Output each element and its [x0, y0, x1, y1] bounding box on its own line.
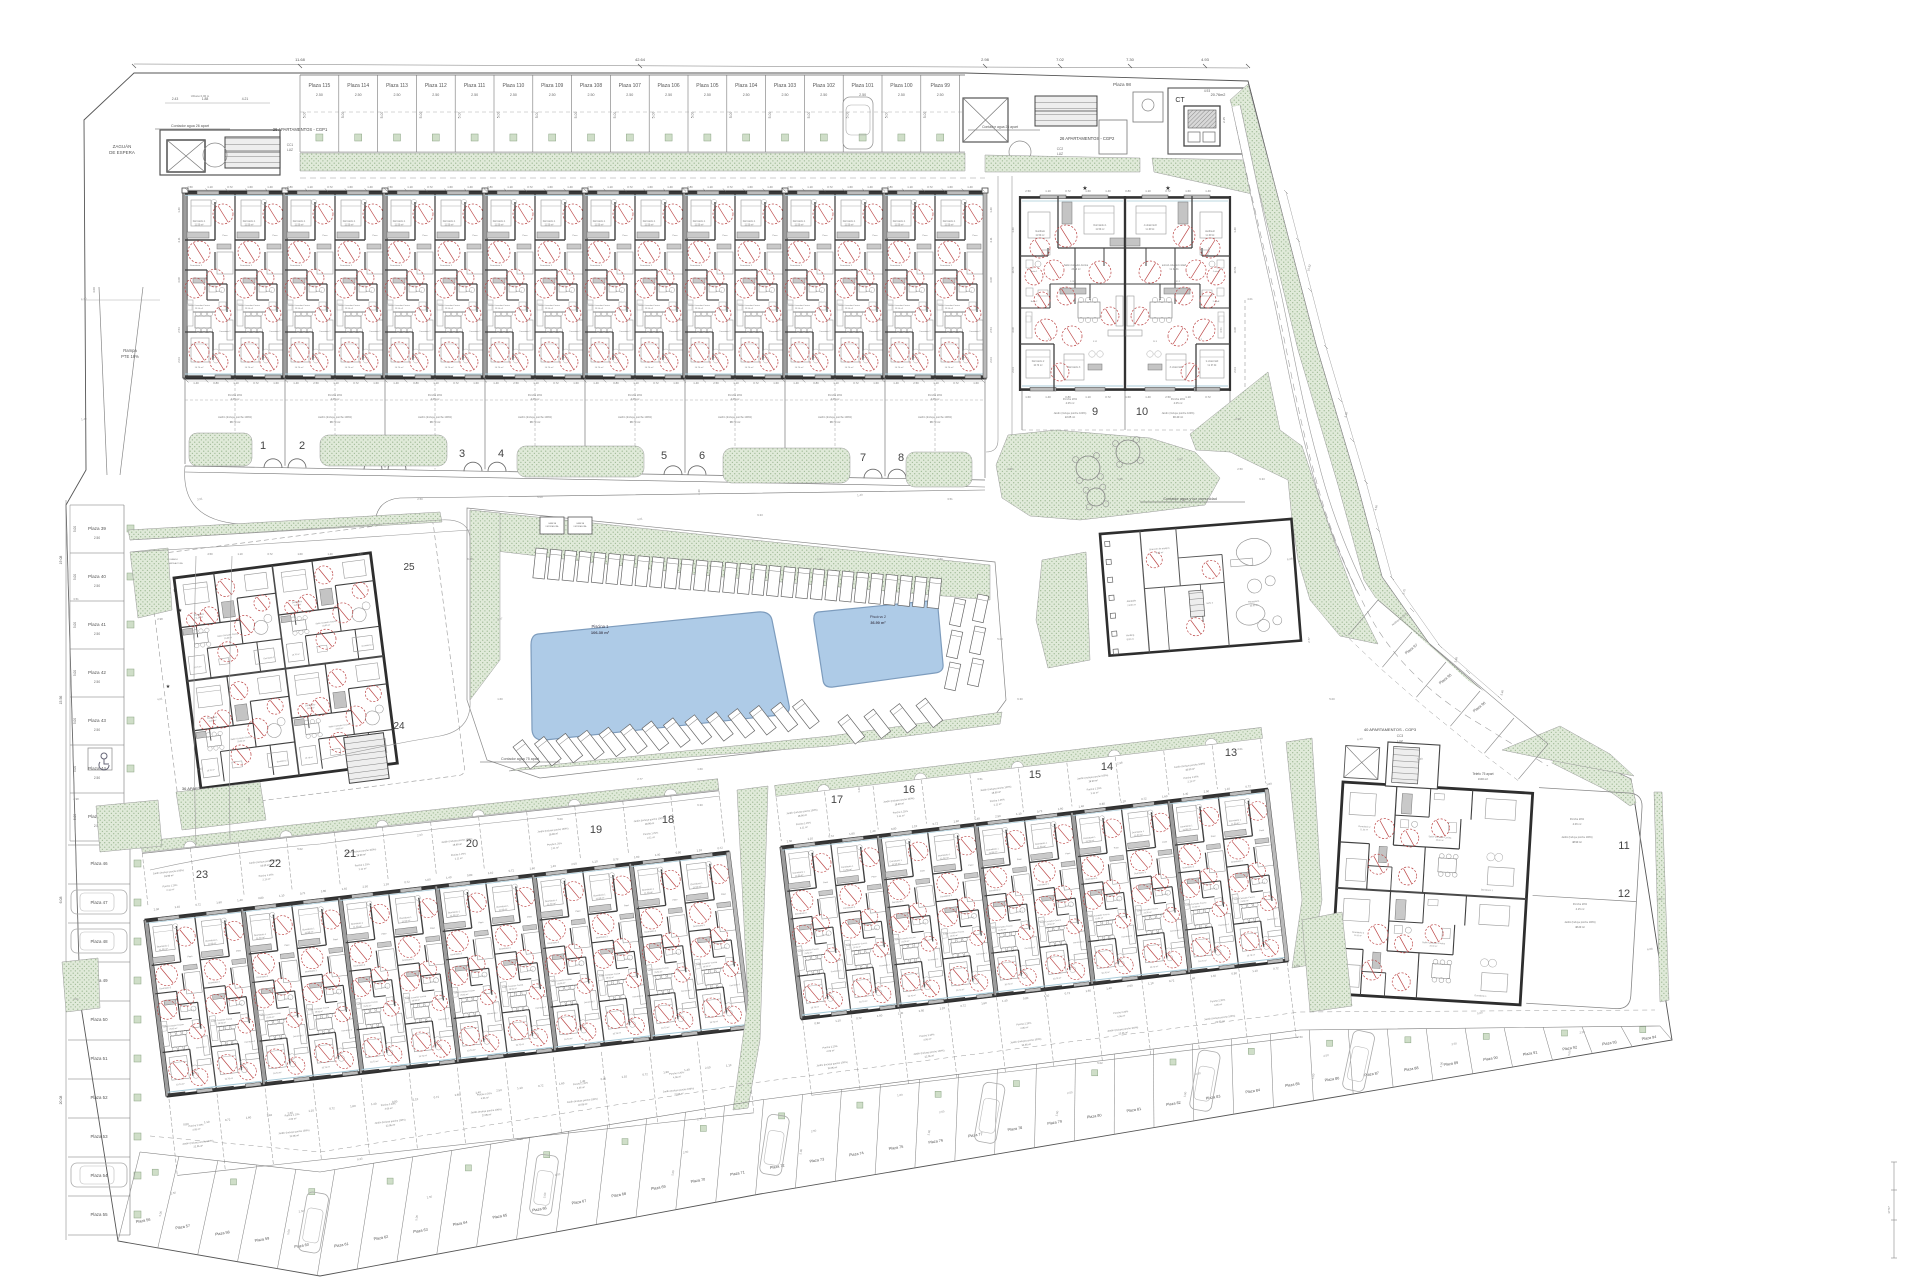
svg-text:0.72: 0.72	[195, 902, 201, 907]
svg-text:1.40: 1.40	[898, 1011, 904, 1016]
svg-text:1.40: 1.40	[493, 381, 499, 385]
svg-text:1.60: 1.60	[1085, 988, 1091, 993]
svg-text:1.60: 1.60	[747, 185, 753, 189]
svg-text:13: 13	[1225, 747, 1237, 759]
svg-text:Jardín (Incluye porche 100%): Jardín (Incluye porche 100%)	[1162, 412, 1195, 415]
svg-text:6.08: 6.08	[1647, 947, 1653, 952]
svg-text:0.72: 0.72	[427, 185, 433, 189]
svg-text:1.40: 1.40	[1002, 998, 1008, 1003]
svg-text:0.80: 0.80	[1231, 971, 1237, 976]
svg-text:2.50: 2.50	[898, 93, 905, 97]
svg-text:Plaza 42: Plaza 42	[88, 670, 106, 675]
svg-text:Porche 20%: Porche 20%	[828, 393, 843, 397]
svg-text:2.50: 2.50	[743, 93, 750, 97]
svg-text:PTE 16%: PTE 16%	[121, 354, 139, 359]
svg-text:2.50: 2.50	[1237, 467, 1243, 471]
svg-text:1.40: 1.40	[393, 381, 399, 385]
svg-text:2.50: 2.50	[549, 93, 556, 97]
svg-text:1.10: 1.10	[592, 859, 598, 864]
svg-text:1.60: 1.60	[634, 855, 640, 860]
svg-text:1.10: 1.10	[533, 381, 539, 385]
svg-text:1.60: 1.60	[873, 381, 879, 385]
svg-text:Plaza 112: Plaza 112	[425, 83, 447, 89]
svg-text:1.40: 1.40	[1205, 189, 1211, 193]
svg-text:4.05 m²: 4.05 m²	[531, 397, 540, 401]
svg-text:1.40: 1.40	[793, 381, 799, 385]
svg-text:1.40: 1.40	[1011, 227, 1015, 233]
svg-text:0.72: 0.72	[642, 1072, 648, 1077]
svg-text:7: 7	[860, 452, 866, 464]
svg-text:1.10: 1.10	[517, 1086, 523, 1091]
svg-text:19.08: 19.08	[59, 556, 63, 565]
svg-text:Porche 20%: Porche 20%	[328, 393, 343, 397]
svg-text:15.56: 15.56	[59, 696, 63, 705]
svg-text:5: 5	[661, 450, 667, 462]
svg-text:1.60: 1.60	[1185, 189, 1191, 193]
svg-text:Plaza 98: Plaza 98	[1113, 82, 1131, 87]
svg-text:1.10: 1.10	[607, 185, 613, 189]
svg-text:1.40: 1.40	[1417, 757, 1423, 762]
svg-text:1.40: 1.40	[81, 417, 87, 422]
svg-text:1.10: 1.10	[207, 185, 213, 189]
svg-text:25: 25	[403, 562, 415, 573]
svg-text:0.72: 0.72	[856, 1016, 862, 1021]
svg-text:5.00: 5.00	[557, 817, 563, 821]
svg-text:0.80: 0.80	[813, 381, 819, 385]
svg-text:6.30: 6.30	[1357, 737, 1363, 742]
svg-text:0.80: 0.80	[1125, 189, 1131, 193]
svg-text:9.00 m²: 9.00 m²	[1156, 551, 1164, 555]
svg-text:20: 20	[466, 838, 478, 850]
svg-text:Plaza 102: Plaza 102	[813, 83, 835, 89]
svg-text:2.50: 2.50	[918, 1008, 924, 1013]
svg-text:0.72: 0.72	[727, 185, 733, 189]
svg-text:1.60: 1.60	[216, 900, 222, 905]
svg-text:2.50: 2.50	[510, 93, 517, 97]
svg-text:1.40: 1.40	[550, 864, 556, 869]
svg-text:2.50: 2.50	[665, 93, 672, 97]
svg-text:0.80: 0.80	[467, 873, 473, 878]
svg-text:Jardín (Incluye porche 100%): Jardín (Incluye porche 100%)	[218, 415, 252, 419]
svg-text:0.72: 0.72	[1205, 395, 1211, 399]
svg-text:1.10: 1.10	[1148, 981, 1154, 986]
svg-text:0.72: 0.72	[225, 1117, 231, 1122]
svg-text:2.50: 2.50	[387, 185, 393, 189]
svg-text:3.08: 3.08	[1233, 327, 1237, 333]
svg-text:0.72: 0.72	[1065, 189, 1071, 193]
svg-text:5.00: 5.00	[537, 495, 543, 499]
svg-text:DEPURADORA: DEPURADORA	[546, 525, 559, 528]
svg-text:1.60: 1.60	[877, 1013, 883, 1018]
svg-text:8.00 m²: 8.00 m²	[1127, 638, 1135, 642]
svg-text:9.33: 9.33	[1259, 477, 1265, 481]
svg-text:106.30 m²: 106.30 m²	[591, 630, 610, 635]
svg-text:5.00: 5.00	[73, 526, 77, 532]
svg-text:2.50: 2.50	[207, 552, 213, 556]
svg-text:0.72: 0.72	[1273, 966, 1279, 971]
svg-text:Plaza 43: Plaza 43	[88, 718, 106, 723]
svg-text:0.80: 0.80	[600, 1077, 606, 1082]
svg-text:5.00: 5.00	[458, 112, 462, 119]
svg-text:Porche 20%: Porche 20%	[1573, 902, 1588, 906]
svg-text:1.40: 1.40	[1145, 395, 1151, 399]
svg-text:0.72: 0.72	[828, 834, 834, 839]
svg-text:3: 3	[459, 448, 465, 460]
svg-text:0.72: 0.72	[527, 185, 533, 189]
svg-text:14: 14	[1101, 761, 1113, 773]
svg-text:11.75: 11.75	[1127, 509, 1134, 513]
svg-text:5.00: 5.00	[574, 112, 578, 119]
svg-text:CASETA: CASETA	[548, 522, 557, 525]
svg-text:1.10: 1.10	[833, 381, 839, 385]
svg-text:11.68: 11.68	[295, 57, 305, 62]
svg-text:DE ESPERA: DE ESPERA	[109, 150, 135, 155]
svg-text:0.72: 0.72	[627, 185, 633, 189]
svg-text:2: 2	[299, 440, 305, 452]
svg-text:2.50: 2.50	[786, 839, 792, 844]
svg-text:2.98: 2.98	[1007, 467, 1013, 471]
svg-text:0.80: 0.80	[213, 381, 219, 385]
svg-text:0.80: 0.80	[258, 895, 264, 900]
svg-text:19: 19	[590, 824, 602, 836]
svg-text:1.40: 1.40	[893, 381, 899, 385]
svg-text:1.40: 1.40	[1233, 227, 1237, 233]
svg-text:1.10: 1.10	[1085, 395, 1091, 399]
svg-text:5.00: 5.00	[807, 112, 811, 119]
svg-text:2.50: 2.50	[94, 776, 100, 780]
svg-text:2.15: 2.15	[1222, 117, 1226, 123]
svg-text:1.40: 1.40	[1210, 973, 1216, 978]
svg-text:1.10: 1.10	[907, 185, 913, 189]
svg-text:Contador agua 26 apart: Contador agua 26 apart	[171, 124, 209, 128]
svg-text:38.70 m²: 38.70 m²	[430, 420, 441, 424]
svg-text:Plaza 50: Plaza 50	[90, 1017, 108, 1022]
svg-text:2.50: 2.50	[820, 93, 827, 97]
svg-text:Rampa: Rampa	[123, 348, 137, 353]
svg-text:6.08: 6.08	[467, 557, 473, 561]
svg-text:38.70 m²: 38.70 m²	[630, 420, 641, 424]
svg-text:DEPURADORA: DEPURADORA	[574, 525, 587, 528]
svg-text:1.60: 1.60	[1162, 794, 1168, 799]
svg-text:40 APARTAMENTOS - CGP3: 40 APARTAMENTOS - CGP3	[1364, 727, 1417, 732]
svg-text:1.10: 1.10	[633, 381, 639, 385]
svg-text:1.40: 1.40	[1183, 791, 1189, 796]
svg-text:5.00: 5.00	[380, 112, 384, 119]
svg-text:2.50: 2.50	[94, 536, 100, 540]
svg-text:1.10: 1.10	[279, 893, 285, 898]
svg-text:1.10: 1.10	[807, 185, 813, 189]
svg-text:0.80: 0.80	[413, 381, 419, 385]
svg-text:1.10: 1.10	[507, 185, 513, 189]
svg-text:4.21: 4.21	[242, 97, 249, 101]
svg-text:Porche 20%: Porche 20%	[1063, 397, 1078, 401]
svg-text:2.50: 2.50	[782, 93, 789, 97]
svg-text:1.60: 1.60	[973, 381, 979, 385]
svg-text:4.05 m²: 4.05 m²	[331, 397, 340, 401]
svg-text:Plaza 103: Plaza 103	[774, 83, 796, 89]
svg-text:2.50: 2.50	[713, 381, 719, 385]
svg-text:0.72: 0.72	[960, 1003, 966, 1008]
svg-text:1.60: 1.60	[847, 185, 853, 189]
svg-text:3.51: 3.51	[73, 597, 79, 601]
svg-text:2.98: 2.98	[1235, 417, 1241, 421]
svg-text:4.15 m²: 4.15 m²	[1576, 907, 1585, 911]
svg-text:0.72: 0.72	[827, 185, 833, 189]
svg-text:5.00: 5.00	[729, 112, 733, 119]
svg-text:0.80: 0.80	[887, 185, 893, 189]
svg-text:1.40: 1.40	[266, 1113, 272, 1118]
svg-text:CC2: CC2	[1057, 147, 1064, 151]
svg-text:Plaza 111: Plaza 111	[464, 83, 486, 89]
svg-text:1.60: 1.60	[297, 552, 303, 556]
svg-text:Piscina 1: Piscina 1	[592, 624, 610, 629]
svg-text:5.00: 5.00	[690, 112, 694, 119]
svg-text:1.40: 1.40	[857, 787, 861, 793]
svg-text:0.72: 0.72	[227, 185, 233, 189]
svg-text:Plaza 39: Plaza 39	[88, 526, 106, 531]
svg-text:1: 1	[260, 440, 266, 452]
svg-text:Jardín (Incluye porche 100%): Jardín (Incluye porche 100%)	[1564, 921, 1595, 924]
svg-text:1.40: 1.40	[1078, 804, 1084, 809]
svg-text:5.00: 5.00	[302, 112, 306, 119]
svg-text:1.40: 1.40	[1045, 395, 1051, 399]
svg-text:CASETA: CASETA	[576, 522, 585, 525]
svg-text:1.40: 1.40	[237, 898, 243, 903]
svg-text:Porche 20%: Porche 20%	[928, 393, 943, 397]
svg-text:0.72: 0.72	[927, 185, 933, 189]
svg-text:12: 12	[1618, 888, 1630, 900]
svg-text:2.50: 2.50	[913, 381, 919, 385]
svg-text:38.70 m²: 38.70 m²	[530, 420, 541, 424]
svg-text:5.00: 5.00	[419, 112, 423, 119]
svg-text:2.98: 2.98	[157, 617, 163, 621]
svg-text:5.00: 5.00	[73, 814, 77, 820]
svg-text:1.10: 1.10	[407, 185, 413, 189]
svg-text:2.50: 2.50	[859, 93, 866, 97]
svg-text:2.50: 2.50	[937, 93, 944, 97]
svg-text:5.00: 5.00	[341, 112, 345, 119]
svg-text:0.72: 0.72	[1165, 189, 1171, 193]
svg-text:Piscina 2: Piscina 2	[870, 614, 887, 619]
svg-text:2.50: 2.50	[94, 680, 100, 684]
svg-text:11.50 m²: 11.50 m²	[1354, 934, 1362, 937]
svg-text:1.60: 1.60	[647, 185, 653, 189]
svg-text:1.60: 1.60	[1125, 395, 1131, 399]
svg-text:1.60: 1.60	[773, 381, 779, 385]
svg-text:Porche 20%: Porche 20%	[428, 393, 443, 397]
svg-text:6.30: 6.30	[697, 803, 703, 807]
svg-text:Jardín (Incluye porche 100%): Jardín (Incluye porche 100%)	[318, 415, 352, 419]
svg-text:22: 22	[269, 858, 281, 870]
svg-text:2.50: 2.50	[588, 93, 595, 97]
svg-text:0.72: 0.72	[613, 857, 619, 862]
svg-text:1.40: 1.40	[667, 185, 673, 189]
svg-text:Jardín (Incluye porche 100%): Jardín (Incluye porche 100%)	[718, 415, 752, 419]
svg-text:1.40: 1.40	[177, 207, 181, 213]
svg-text:Plaza 107: Plaza 107	[619, 83, 641, 89]
svg-text:4.01: 4.01	[73, 997, 79, 1001]
svg-text:1.40: 1.40	[467, 185, 473, 189]
svg-text:1.40: 1.40	[967, 185, 973, 189]
svg-text:1.60: 1.60	[897, 1093, 903, 1098]
svg-text:1.60: 1.60	[547, 185, 553, 189]
svg-text:4.06 m²: 4.06 m²	[1573, 822, 1582, 826]
svg-text:6.08: 6.08	[59, 897, 63, 904]
svg-text:Plaza 55: Plaza 55	[90, 1212, 108, 1217]
svg-text:Jardín (Incluye porche 100%): Jardín (Incluye porche 100%)	[618, 415, 652, 419]
svg-text:Plaza 110: Plaza 110	[502, 83, 524, 89]
svg-text:0.80: 0.80	[1099, 801, 1105, 806]
svg-text:1.40: 1.40	[293, 381, 299, 385]
svg-text:Plaza 115: Plaza 115	[308, 83, 330, 89]
svg-text:1.60: 1.60	[1085, 189, 1091, 193]
svg-text:1.60: 1.60	[347, 185, 353, 189]
svg-text:0.72: 0.72	[353, 381, 359, 385]
svg-text:1.60: 1.60	[273, 381, 279, 385]
svg-text:2.50: 2.50	[704, 93, 711, 97]
svg-text:5.00: 5.00	[73, 574, 77, 580]
svg-text:1.40: 1.40	[867, 185, 873, 189]
svg-text:0.72: 0.72	[717, 846, 723, 851]
svg-text:1.60: 1.60	[849, 831, 855, 836]
svg-text:2.50: 2.50	[432, 93, 439, 97]
svg-text:1.10: 1.10	[1044, 993, 1050, 998]
svg-text:1.10: 1.10	[383, 882, 389, 887]
svg-text:1.60: 1.60	[447, 185, 453, 189]
svg-text:0.72: 0.72	[267, 552, 273, 556]
svg-text:Plaza 51: Plaza 51	[90, 1056, 108, 1061]
svg-text:5.00: 5.00	[884, 112, 888, 119]
svg-text:5.00: 5.00	[768, 112, 772, 119]
svg-text:4.93: 4.93	[1201, 57, 1210, 62]
svg-text:10: 10	[1136, 406, 1148, 418]
svg-text:2.54: 2.54	[177, 327, 181, 333]
svg-text:Jardín (Incluye porche 100%): Jardín (Incluye porche 100%)	[1561, 836, 1592, 839]
svg-text:11.50 m²: 11.50 m²	[1360, 828, 1368, 831]
svg-text:1.10: 1.10	[707, 185, 713, 189]
svg-text:1.10: 1.10	[433, 381, 439, 385]
svg-text:6.30: 6.30	[1017, 697, 1023, 701]
svg-text:22.05 m²: 22.05 m²	[1065, 415, 1075, 419]
svg-text:LUZ: LUZ	[1057, 152, 1063, 156]
svg-text:4.11: 4.11	[177, 237, 181, 243]
svg-text:Contador agua 26 apart: Contador agua 26 apart	[982, 125, 1018, 129]
svg-text:CT: CT	[1175, 97, 1185, 104]
svg-text:16: 16	[903, 784, 915, 796]
svg-text:26 APARTAMENTOS - CGP1: 26 APARTAMENTOS - CGP1	[273, 127, 328, 132]
svg-text:5.02: 5.02	[297, 847, 303, 851]
svg-text:1.10: 1.10	[696, 848, 702, 853]
svg-text:1.10: 1.10	[835, 1018, 841, 1023]
svg-text:2.54: 2.54	[989, 327, 993, 333]
svg-text:4.05 m²: 4.05 m²	[731, 397, 740, 401]
svg-text:1.60: 1.60	[473, 381, 479, 385]
svg-text:1.60: 1.60	[1294, 964, 1300, 969]
svg-text:1.60: 1.60	[454, 1092, 460, 1097]
svg-text:3.51: 3.51	[947, 497, 953, 501]
svg-text:9: 9	[1092, 406, 1098, 418]
svg-text:Contador agua 75 apart: Contador agua 75 apart	[501, 757, 539, 761]
svg-text:1.60: 1.60	[246, 1115, 252, 1120]
svg-text:5.00: 5.00	[535, 112, 539, 119]
svg-text:1.40: 1.40	[1105, 189, 1111, 193]
svg-text:0.72: 0.72	[300, 891, 306, 896]
svg-text:Plaza 54: Plaza 54	[90, 1173, 108, 1178]
svg-text:1.60: 1.60	[425, 877, 431, 882]
svg-text:2.50: 2.50	[496, 1088, 502, 1093]
svg-text:1.10: 1.10	[308, 1108, 314, 1113]
svg-text:15: 15	[1029, 769, 1041, 781]
svg-text:★: ★	[178, 608, 183, 614]
svg-text:8: 8	[898, 452, 904, 464]
svg-text:5.00: 5.00	[496, 112, 500, 119]
svg-text:6: 6	[699, 450, 705, 462]
svg-text:2.50: 2.50	[705, 1065, 711, 1070]
svg-text:0.80: 0.80	[687, 185, 693, 189]
svg-text:4.05 m²: 4.05 m²	[831, 397, 840, 401]
svg-text:Porche 20%: Porche 20%	[528, 393, 543, 397]
svg-text:24: 24	[393, 721, 405, 732]
svg-text:23.00 m²: 23.00 m²	[1436, 839, 1444, 842]
svg-text:1.40: 1.40	[567, 185, 573, 189]
svg-text:Plaza 40: Plaza 40	[88, 574, 106, 579]
svg-text:2.50: 2.50	[626, 93, 633, 97]
svg-text:0.80: 0.80	[613, 381, 619, 385]
svg-text:1.10: 1.10	[307, 185, 313, 189]
svg-text:2.50: 2.50	[394, 93, 401, 97]
svg-text:4.93: 4.93	[1204, 89, 1210, 93]
svg-text:2.50: 2.50	[362, 884, 368, 889]
svg-text:21: 21	[344, 848, 356, 860]
svg-text:1.10: 1.10	[488, 871, 494, 876]
svg-text:Plaza 105: Plaza 105	[696, 83, 718, 89]
svg-text:4.05 m²: 4.05 m²	[431, 397, 440, 401]
svg-text:9.33: 9.33	[757, 513, 763, 517]
svg-text:6.30: 6.30	[697, 489, 701, 495]
svg-text:0.72: 0.72	[853, 381, 859, 385]
svg-text:1.60: 1.60	[350, 1104, 356, 1109]
svg-text:1.40: 1.40	[367, 185, 373, 189]
svg-text:CC3: CC3	[1397, 734, 1404, 738]
svg-text:0.80: 0.80	[814, 1021, 820, 1026]
svg-text:1.10: 1.10	[726, 1063, 732, 1068]
svg-text:5.00: 5.00	[923, 112, 927, 119]
svg-text:48.20 m²: 48.20 m²	[1575, 926, 1585, 929]
svg-text:17.57: 17.57	[1887, 1206, 1891, 1214]
svg-text:0.72: 0.72	[1037, 809, 1043, 814]
svg-text:3.08: 3.08	[177, 277, 181, 283]
svg-text:38.70 m²: 38.70 m²	[830, 420, 841, 424]
svg-text:1.40: 1.40	[870, 829, 876, 834]
svg-text:1.10: 1.10	[912, 824, 918, 829]
svg-text:48.90 m²: 48.90 m²	[1572, 841, 1582, 844]
svg-text:4.01: 4.01	[1237, 747, 1243, 751]
svg-text:Plaza 114: Plaza 114	[347, 83, 369, 89]
svg-text:2.77: 2.77	[1307, 637, 1311, 643]
svg-text:Plaza 108: Plaza 108	[580, 83, 602, 89]
svg-text:Jardín (Incluye porche 100%): Jardín (Incluye porche 100%)	[818, 415, 852, 419]
svg-text:1.60: 1.60	[1057, 806, 1063, 811]
svg-text:5.00: 5.00	[73, 670, 77, 676]
svg-text:1.10: 1.10	[237, 552, 243, 556]
svg-text:Telefo 75 apart: Telefo 75 apart	[1472, 772, 1493, 776]
svg-text:1.60: 1.60	[981, 1001, 987, 1006]
svg-text:Plaza 48: Plaza 48	[90, 939, 108, 944]
svg-text:0.72: 0.72	[953, 381, 959, 385]
svg-text:Urbano 0.00 m: Urbano 0.00 m	[191, 94, 210, 98]
svg-text:Plaza 109: Plaza 109	[541, 83, 563, 89]
svg-text:Porche 20%: Porche 20%	[1570, 817, 1585, 821]
